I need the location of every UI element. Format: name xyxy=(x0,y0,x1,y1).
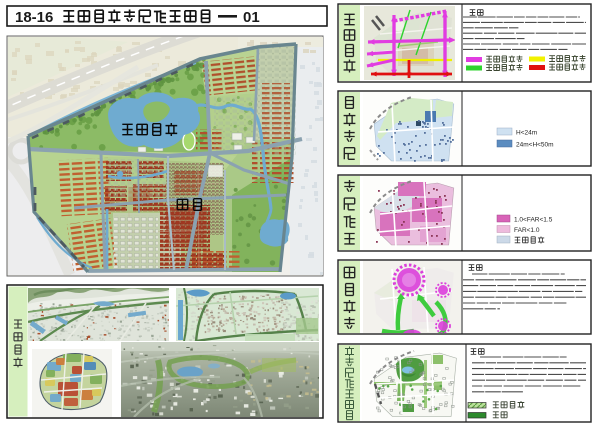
svg-text:FAR<1.0: FAR<1.0 xyxy=(514,227,540,234)
svg-text:01: 01 xyxy=(243,9,260,26)
svg-text:H<24m: H<24m xyxy=(516,130,537,137)
svg-text:18-16: 18-16 xyxy=(15,9,53,26)
svg-text:24m<H<50m: 24m<H<50m xyxy=(516,142,554,149)
svg-text:1.0<FAR<1.5: 1.0<FAR<1.5 xyxy=(514,217,553,224)
